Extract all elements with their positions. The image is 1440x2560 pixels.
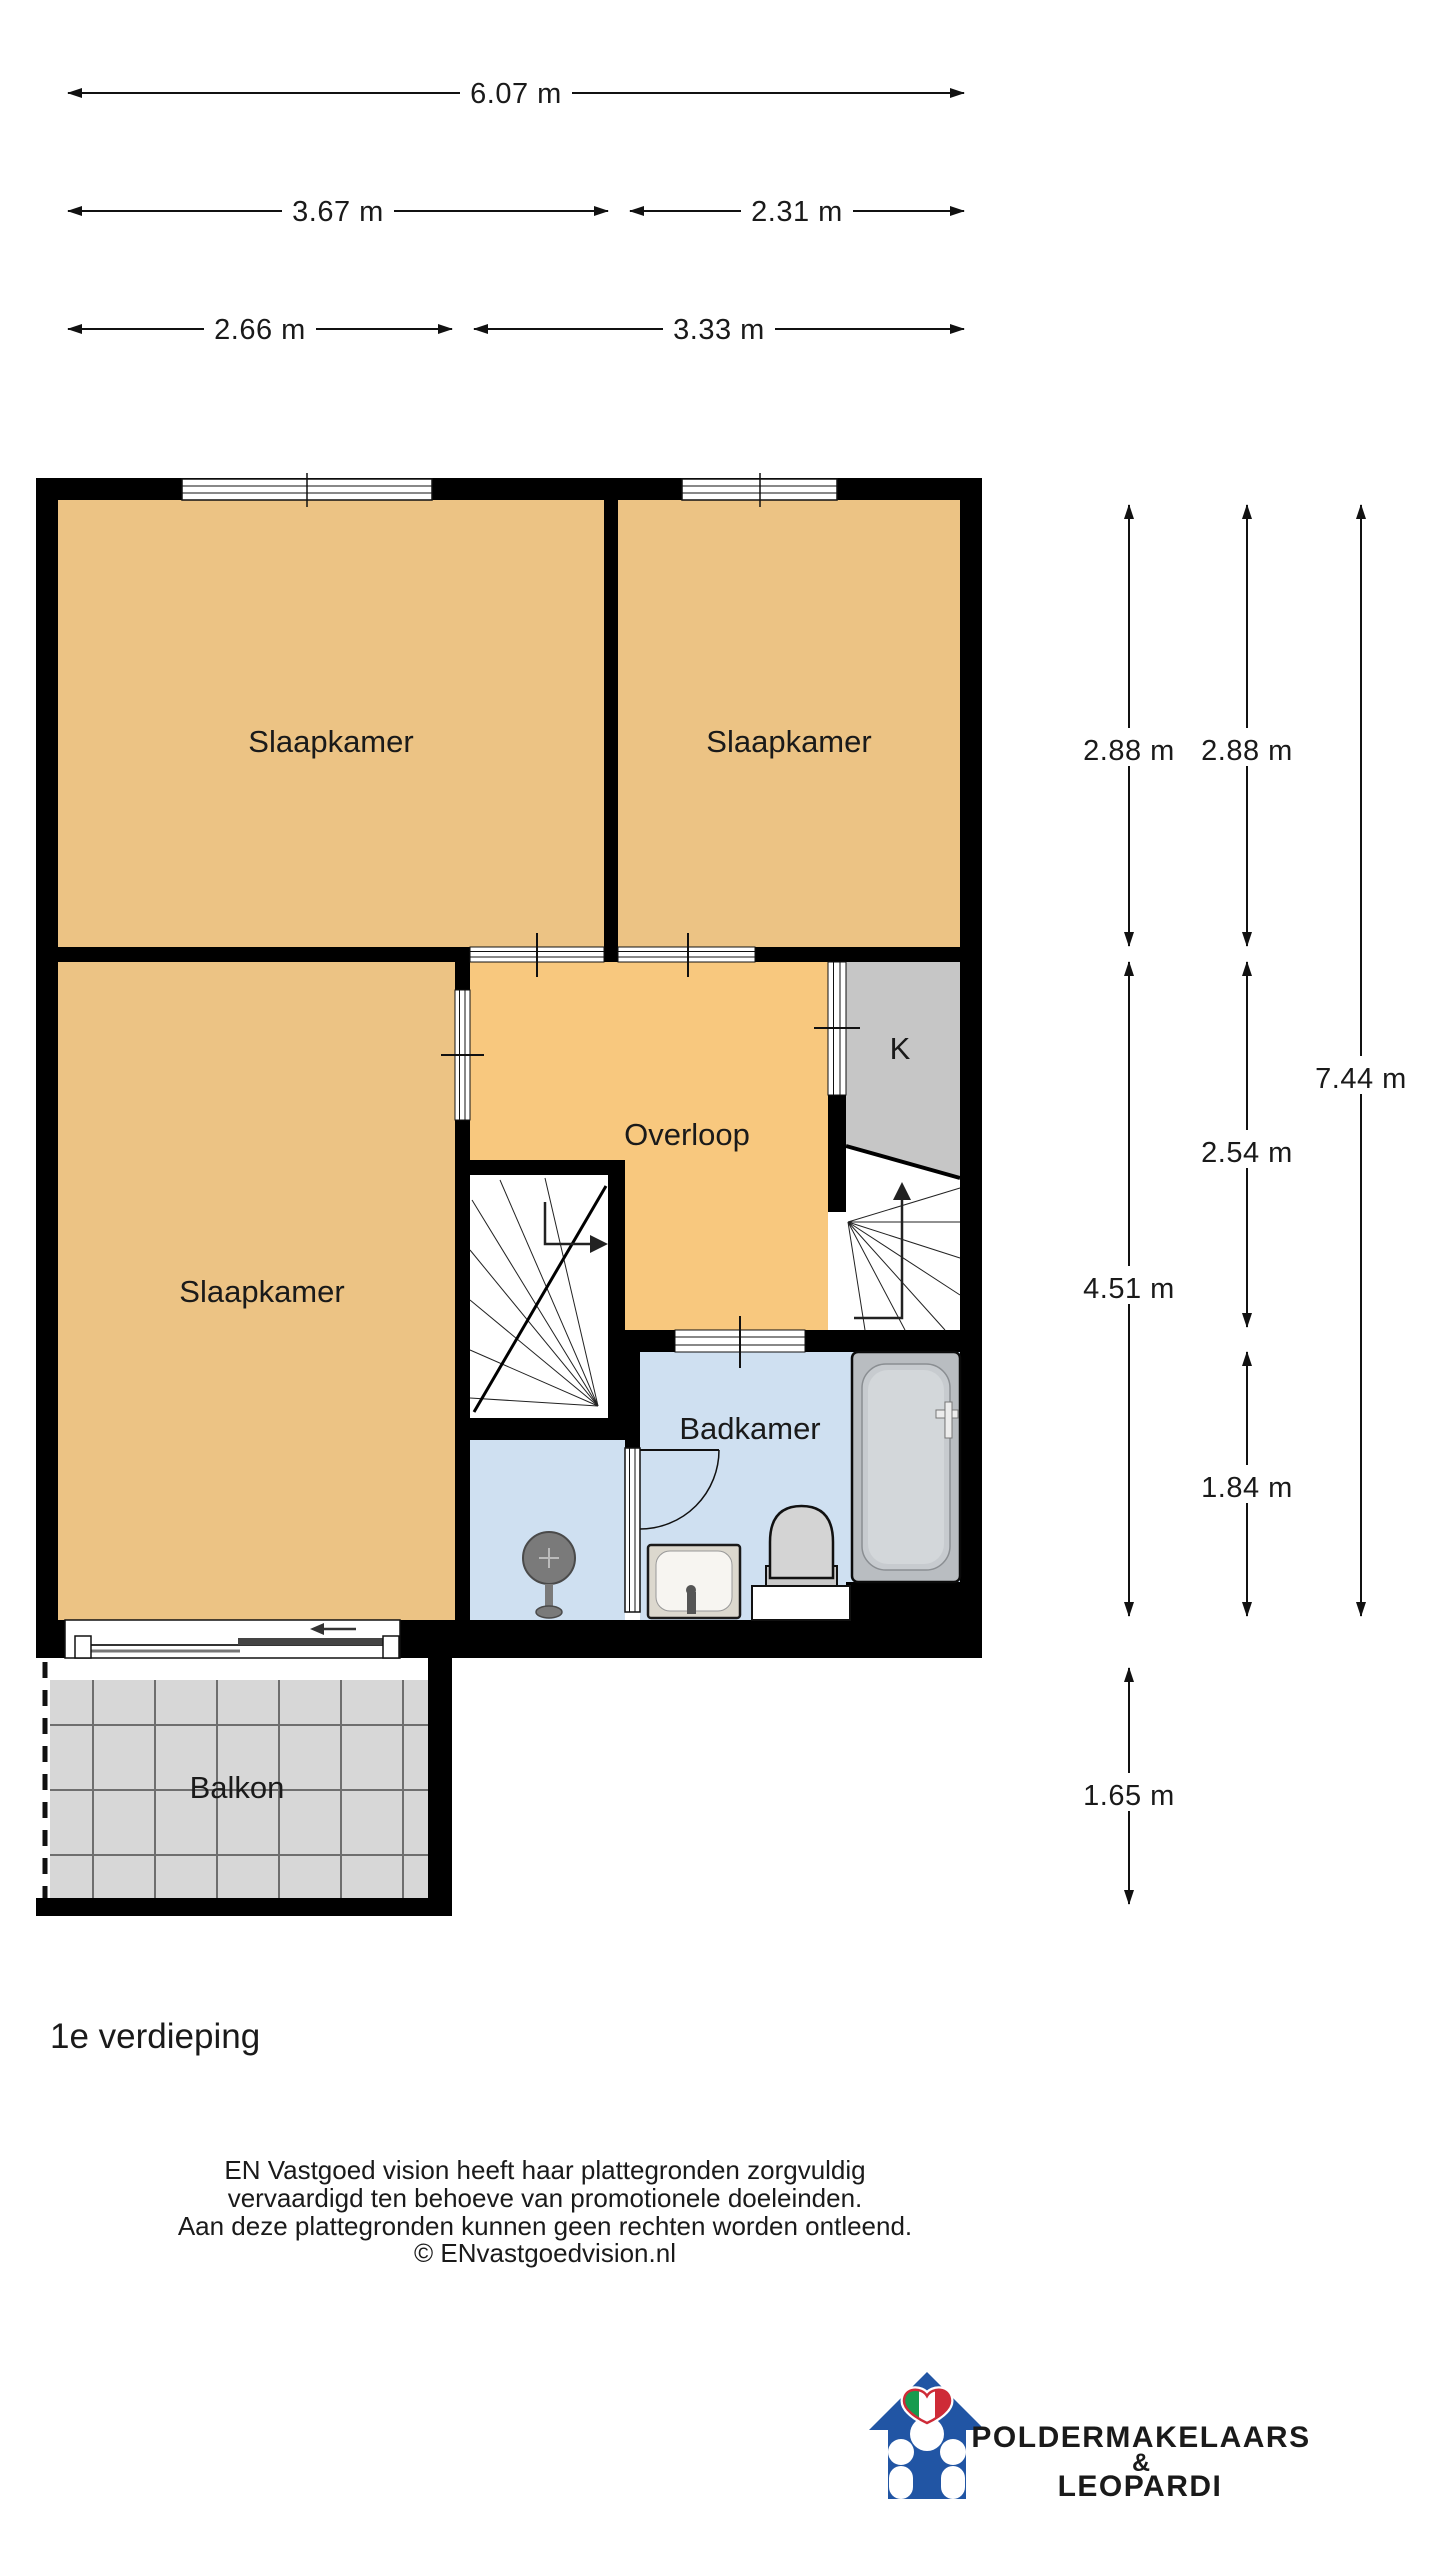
dim-width-left: 3.67 m — [292, 196, 384, 228]
sink-icon — [648, 1545, 740, 1618]
balcony-wall-bottom — [36, 1898, 452, 1916]
broker-logo: POLDERMAKELAARS & LEOPARDI — [869, 2372, 1311, 2503]
stairs-left — [470, 1175, 608, 1418]
disclaimer-line1: EN Vastgoed vision heeft haar plattegron… — [224, 2155, 865, 2185]
dim-lower-width-left: 2.66 m — [214, 314, 306, 346]
dim-balcony-depth: 1.65 m — [1083, 1780, 1175, 1812]
toilet-icon — [766, 1506, 837, 1586]
dim-bathroom-depth: 1.84 m — [1201, 1472, 1293, 1504]
sliding-door-balcony — [65, 1620, 400, 1658]
label-landing: Overloop — [624, 1117, 750, 1152]
disclaimer: EN Vastgoed vision heeft haar plattegron… — [178, 2155, 912, 2268]
dim-landing-depth: 2.54 m — [1201, 1137, 1293, 1169]
floorplan-drawing: 6.07 m 3.67 m 2.31 m 2.66 m 3.33 m 2.88 … — [0, 0, 1440, 2560]
label-bedroom-left: Slaapkamer — [179, 1274, 344, 1309]
dim-total-depth: 7.44 m — [1315, 1063, 1407, 1095]
room-closet — [846, 962, 960, 1178]
balcony-wall-right — [428, 1658, 452, 1916]
floor-title: 1e verdieping — [50, 2017, 260, 2056]
disclaimer-line2: vervaardigd ten behoeve van promotionele… — [228, 2183, 863, 2213]
dim-lower-width-right: 3.33 m — [673, 314, 765, 346]
right-dimensions — [1066, 505, 1424, 1904]
dim-bedroom-left-depth: 4.51 m — [1083, 1273, 1175, 1305]
floorplan-page: 6.07 m 3.67 m 2.31 m 2.66 m 3.33 m 2.88 … — [0, 0, 1440, 2560]
bathtub-icon — [852, 1352, 960, 1582]
bathroom-ledge — [752, 1586, 850, 1620]
disclaimer-line3: Aan deze plattegronden kunnen geen recht… — [178, 2211, 912, 2241]
logo-name-bottom: LEOPARDI — [1058, 2470, 1223, 2503]
label-bedroom-top-left: Slaapkamer — [248, 724, 413, 759]
stairs-upper-floor — [828, 1148, 960, 1330]
label-closet: K — [890, 1031, 911, 1066]
disclaimer-line4: © ENvastgoedvision.nl — [414, 2238, 676, 2268]
dim-bedrooms-depth-right: 2.88 m — [1201, 735, 1293, 767]
dim-bedrooms-depth-left: 2.88 m — [1083, 735, 1175, 767]
label-balcony: Balkon — [190, 1770, 285, 1805]
room-fills — [58, 500, 960, 1620]
dim-width-right: 2.31 m — [751, 196, 843, 228]
label-bathroom: Badkamer — [679, 1411, 820, 1446]
dim-total-width: 6.07 m — [470, 78, 562, 110]
label-bedroom-top-right: Slaapkamer — [706, 724, 871, 759]
